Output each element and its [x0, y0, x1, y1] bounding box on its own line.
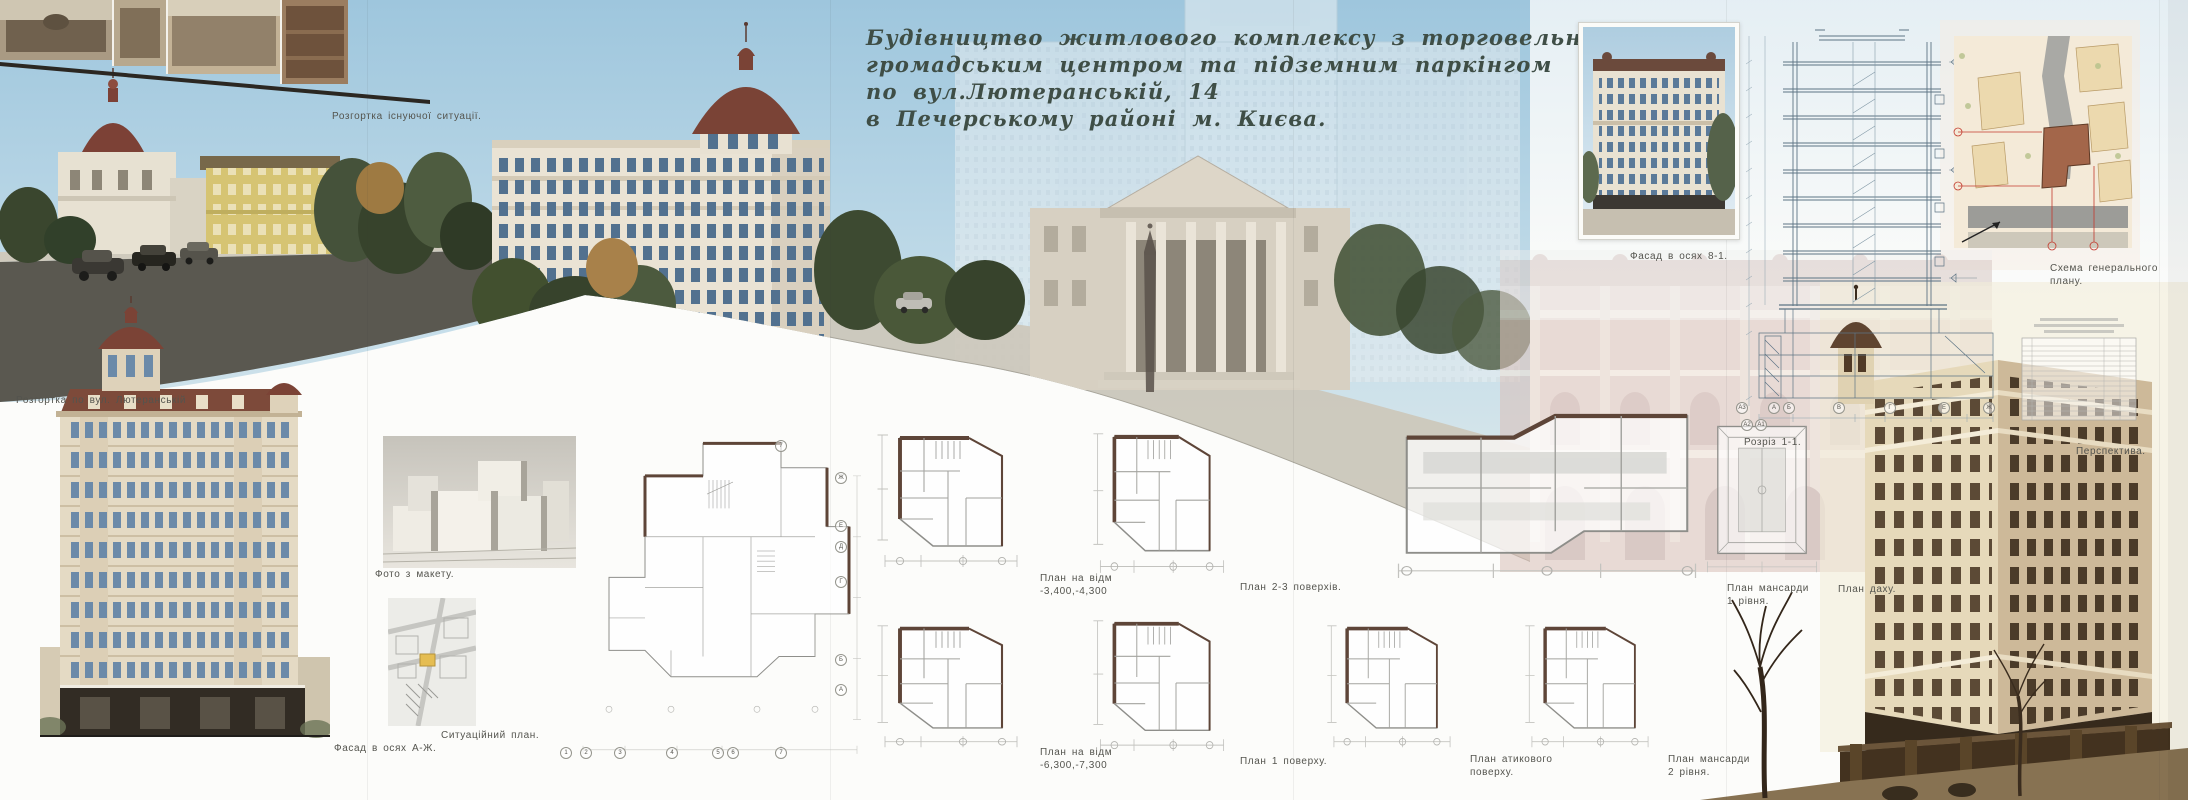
elevation-a-zh-drawing — [40, 295, 330, 740]
axis-bubble: 7 — [775, 747, 787, 759]
floor-plan-attic — [1326, 612, 1458, 750]
caption-model-photo: Фото з макету. — [375, 568, 454, 581]
master-plan-drawing — [1948, 36, 2138, 260]
facade-8-1-inset — [1578, 22, 1740, 240]
large-floor-plan — [575, 415, 865, 760]
axis-bubble: А3 — [1736, 402, 1748, 414]
axis-bubble: Ж — [835, 472, 847, 484]
caption-plan-mansard-1: План мансарди 1 рівня. — [1727, 582, 1809, 608]
caption-plan-attic: План атикового поверху. — [1470, 753, 1553, 779]
axis-bubble: Е — [1938, 402, 1950, 414]
spire-silhouette — [1144, 224, 1156, 393]
axis-bubble: Б — [1783, 402, 1795, 414]
floor-plan-basement-upper — [876, 420, 1026, 570]
axis-bubble: Д — [835, 541, 847, 553]
floor-plan-mansard-1 — [1382, 398, 1712, 578]
axis-bubble: 6 — [727, 747, 739, 759]
caption-facade-a-zh: Фасад в осях А-Ж. — [334, 742, 436, 755]
model-photo — [383, 436, 576, 568]
caption-situation-plan: Ситуаційний план. — [441, 729, 539, 742]
axis-bubble: А — [1768, 402, 1780, 414]
axis-bubble: А — [835, 684, 847, 696]
axis-bubble: А2 — [1741, 419, 1753, 431]
title-line: Будівництво житлового комплексу з торгов… — [866, 24, 1607, 51]
caption-plan-mansard-2: План мансарди 2 рівня. — [1668, 753, 1750, 779]
axis-bubble: В — [1833, 402, 1845, 414]
caption-plan-roof: План даху. — [1838, 583, 1896, 596]
floor-plan-mansard-2 — [1524, 612, 1656, 750]
axis-bubble: 5 — [712, 747, 724, 759]
axis-bubble: 7 — [775, 440, 787, 452]
caption-plan-floors-2-3: План 2-3 поверхів. — [1240, 581, 1341, 594]
indicators-table — [2020, 316, 2138, 422]
caption-plan-basement-lower: План на відм -6,300,-7,300 — [1040, 746, 1112, 772]
situation-plan-drawing — [388, 598, 476, 726]
caption-plan-floor-1: План 1 поверху. — [1240, 755, 1327, 768]
axis-bubble: 3 — [614, 747, 626, 759]
caption-existing-situation: Розгортка існуючої ситуації. — [332, 110, 482, 123]
caption-plan-basement-upper: План на відм -3,400,-4,300 — [1040, 572, 1112, 598]
caption-facade-8-1: Фасад в осях 8-1. — [1630, 250, 1728, 263]
caption-master-plan: Схема генерального плану. — [2050, 262, 2158, 288]
floor-plan-floor-1 — [1092, 606, 1232, 754]
axis-bubble: 1 — [560, 747, 572, 759]
axis-bubble: Е — [835, 520, 847, 532]
axis-bubble: Г — [835, 576, 847, 588]
board-title: Будівництво житлового комплексу з торгов… — [866, 24, 1607, 132]
presentation-board: Будівництво житлового комплексу з торгов… — [0, 0, 2188, 800]
axis-bubble: Г — [1884, 402, 1896, 414]
title-line: в Печерському районі м. Києва. — [866, 105, 1607, 132]
axis-bubble: Ж — [1983, 402, 1995, 414]
fold-seam — [2159, 0, 2160, 800]
axis-bubble: Б — [835, 654, 847, 666]
caption-street-panorama: Розгортка по вул. Лютеранській — [16, 394, 186, 407]
title-line: по вул.Лютеранській, 14 — [866, 78, 1607, 105]
caption-perspective: Перспектива. — [2076, 445, 2146, 458]
floor-plan-basement-lower — [876, 612, 1026, 750]
title-line: громадським центром та підземним паркінг… — [866, 51, 1607, 78]
axis-bubble: 4 — [666, 747, 678, 759]
axis-bubble: 2 — [580, 747, 592, 759]
caption-section-1-1: Розріз 1-1. — [1744, 436, 1801, 449]
axis-bubble: А1 — [1755, 419, 1767, 431]
floor-plan-floors-2-3 — [1092, 418, 1232, 576]
